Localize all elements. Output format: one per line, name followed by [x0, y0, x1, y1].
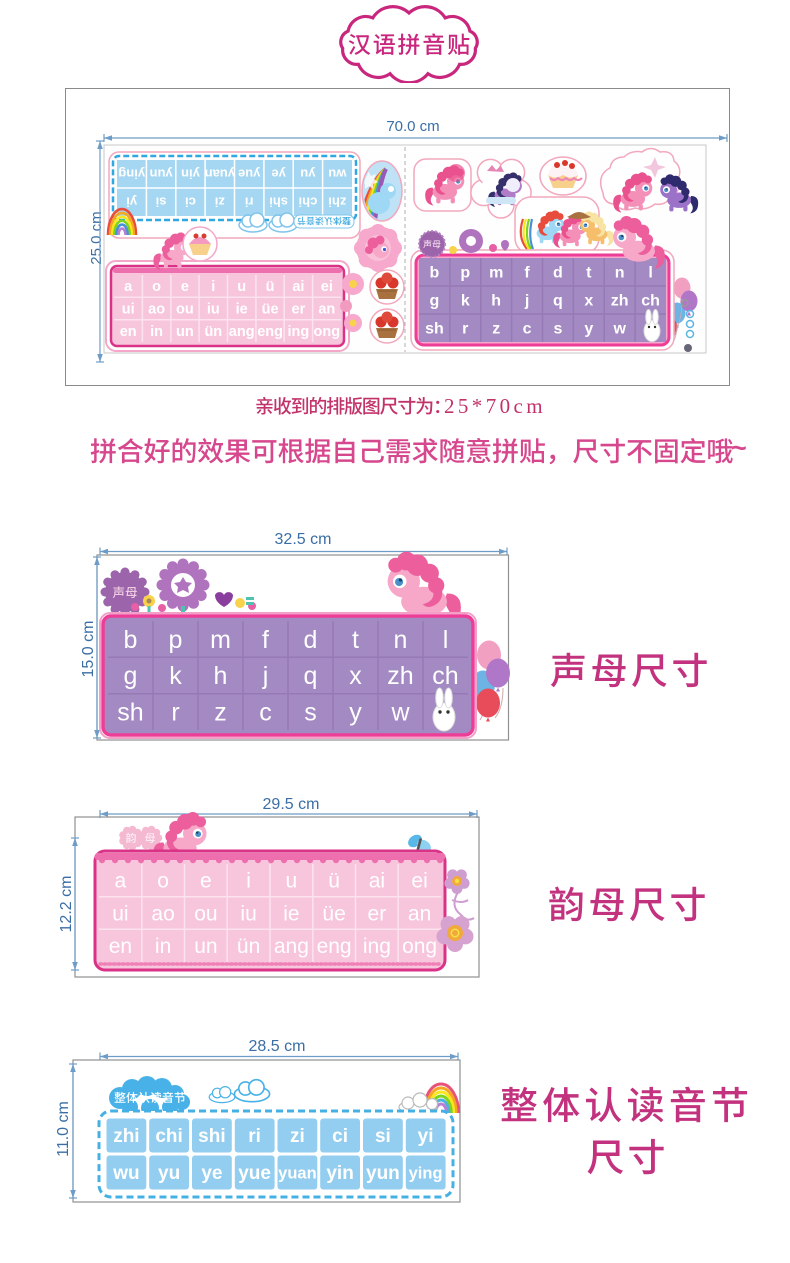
svg-text:h: h: [491, 293, 501, 310]
svg-text:25*70cm: 25*70cm: [444, 394, 546, 418]
svg-text:c: c: [259, 699, 272, 727]
svg-text:ong: ong: [402, 935, 437, 958]
svg-text:ye: ye: [201, 1163, 222, 1184]
svg-text:d: d: [553, 265, 563, 282]
svg-text:shi: shi: [269, 195, 288, 210]
svg-text:chi: chi: [155, 1126, 182, 1147]
svg-text:t: t: [352, 626, 359, 654]
svg-text:ün: ün: [237, 935, 260, 958]
svg-text:a: a: [124, 279, 133, 295]
svg-text:ü: ü: [266, 279, 275, 295]
svg-text:15.0 cm: 15.0 cm: [80, 621, 97, 678]
svg-text:ying: ying: [118, 167, 145, 182]
svg-text:b: b: [124, 626, 138, 654]
svg-text:shi: shi: [198, 1126, 225, 1147]
svg-text:g: g: [430, 293, 440, 310]
svg-text:eng: eng: [257, 324, 283, 340]
svg-text:yun: yun: [366, 1163, 400, 1184]
svg-text:r: r: [462, 321, 468, 338]
svg-text:ong: ong: [314, 324, 341, 340]
svg-text:25.0 cm: 25.0 cm: [88, 211, 105, 264]
svg-text:28.5 cm: 28.5 cm: [249, 1038, 306, 1055]
svg-text:in: in: [155, 935, 171, 958]
svg-text:un: un: [194, 935, 217, 958]
svg-text:q: q: [304, 662, 318, 690]
svg-text:zi: zi: [215, 195, 225, 210]
svg-text:zh: zh: [387, 662, 413, 690]
svg-text:ye: ye: [271, 167, 285, 182]
svg-text:ü: ü: [328, 870, 340, 893]
svg-text:ang: ang: [274, 935, 309, 958]
svg-text:sh: sh: [425, 321, 444, 338]
svg-text:ci: ci: [332, 1126, 348, 1147]
svg-text:yue: yue: [238, 167, 260, 182]
svg-text:ing: ing: [288, 324, 310, 340]
svg-text:x: x: [349, 662, 362, 690]
svg-text:m: m: [210, 626, 231, 654]
svg-text:y: y: [584, 321, 593, 338]
svg-text:z: z: [492, 321, 500, 338]
svg-text:f: f: [262, 626, 269, 654]
svg-text:29.5 cm: 29.5 cm: [263, 796, 320, 813]
svg-text:en: en: [109, 935, 132, 958]
svg-text:wu: wu: [328, 167, 347, 182]
svg-text:üe: üe: [262, 302, 279, 318]
svg-text:zh: zh: [611, 293, 629, 310]
svg-text:ui: ui: [112, 902, 128, 925]
svg-text:er: er: [292, 302, 306, 318]
svg-text:l: l: [443, 626, 449, 654]
svg-text:n: n: [394, 626, 408, 654]
svg-text:z: z: [214, 699, 227, 727]
svg-text:ie: ie: [283, 902, 299, 925]
svg-text:w: w: [612, 321, 626, 338]
svg-text:er: er: [368, 902, 387, 925]
svg-text:an: an: [408, 902, 431, 925]
svg-text:ying: ying: [409, 1164, 443, 1182]
svg-text:yi: yi: [418, 1126, 434, 1147]
svg-text:ei: ei: [321, 279, 333, 295]
svg-text:wu: wu: [112, 1163, 139, 1184]
svg-text:s: s: [304, 699, 317, 727]
svg-text:yi: yi: [126, 195, 137, 210]
svg-text:i: i: [211, 279, 215, 295]
svg-text:u: u: [237, 279, 246, 295]
svg-text:t: t: [586, 265, 592, 282]
svg-text:ch: ch: [641, 293, 660, 310]
svg-text:ri: ri: [245, 195, 254, 210]
svg-text:u: u: [286, 870, 298, 893]
svg-text:~: ~: [731, 433, 747, 463]
svg-text:f: f: [524, 265, 530, 282]
svg-text:o: o: [157, 870, 169, 893]
svg-text:ei: ei: [411, 870, 427, 893]
svg-text:p: p: [169, 626, 183, 654]
svg-text:iu: iu: [207, 302, 220, 318]
svg-text:x: x: [584, 293, 593, 310]
svg-text:ui: ui: [122, 302, 135, 318]
svg-text:e: e: [200, 870, 212, 893]
svg-text:si: si: [156, 195, 167, 210]
svg-text:j: j: [524, 293, 529, 310]
svg-text:sh: sh: [117, 699, 143, 727]
svg-text:ci: ci: [185, 195, 196, 210]
svg-text:d: d: [304, 626, 318, 654]
svg-text:yue: yue: [238, 1163, 271, 1184]
svg-text:o: o: [152, 279, 161, 295]
svg-text:ai: ai: [369, 870, 385, 893]
svg-text:g: g: [124, 662, 138, 690]
svg-text:si: si: [375, 1126, 391, 1147]
svg-text:ou: ou: [176, 302, 194, 318]
svg-text:yuan: yuan: [278, 1164, 317, 1182]
svg-text:yin: yin: [326, 1163, 353, 1184]
svg-text:ao: ao: [151, 902, 174, 925]
svg-text:ri: ri: [248, 1126, 261, 1147]
svg-text:ie: ie: [236, 302, 248, 318]
svg-text:a: a: [115, 870, 127, 893]
svg-text:yu: yu: [300, 167, 315, 182]
svg-text:üe: üe: [322, 902, 345, 925]
svg-text:m: m: [489, 265, 503, 282]
svg-text:yu: yu: [158, 1163, 180, 1184]
svg-text:zhi: zhi: [113, 1126, 139, 1147]
svg-text:an: an: [318, 302, 335, 318]
svg-text:eng: eng: [317, 935, 352, 958]
svg-text:c: c: [523, 321, 532, 338]
svg-text:zhi: zhi: [328, 195, 346, 210]
svg-text:ch: ch: [432, 662, 458, 690]
svg-text:e: e: [181, 279, 189, 295]
svg-text:b: b: [430, 265, 440, 282]
svg-text:yun: yun: [149, 167, 172, 182]
svg-text:h: h: [214, 662, 228, 690]
svg-text:en: en: [120, 324, 137, 340]
svg-text:ün: ün: [204, 324, 222, 340]
svg-text:ao: ao: [148, 302, 165, 318]
svg-text:ang: ang: [229, 324, 255, 340]
svg-text:i: i: [246, 870, 251, 893]
svg-text:yin: yin: [181, 167, 200, 182]
svg-text:l: l: [648, 265, 652, 282]
svg-text:k: k: [461, 293, 470, 310]
svg-text:12.2 cm: 12.2 cm: [58, 876, 75, 933]
svg-text:p: p: [460, 265, 470, 282]
svg-text:yuan: yuan: [205, 167, 235, 182]
svg-text:iu: iu: [240, 902, 256, 925]
svg-text:chi: chi: [299, 195, 318, 210]
svg-text:un: un: [176, 324, 194, 340]
svg-text:ou: ou: [194, 902, 217, 925]
svg-text:q: q: [553, 293, 563, 310]
svg-text:zi: zi: [290, 1126, 305, 1147]
svg-text:ing: ing: [363, 935, 391, 958]
svg-text:n: n: [615, 265, 625, 282]
svg-text:in: in: [150, 324, 163, 340]
svg-text:s: s: [553, 321, 562, 338]
svg-text:11.0 cm: 11.0 cm: [55, 1101, 72, 1157]
svg-text:y: y: [349, 699, 362, 727]
svg-text:w: w: [390, 699, 410, 727]
svg-text:k: k: [169, 662, 182, 690]
svg-text:j: j: [262, 662, 269, 690]
svg-text:32.5 cm: 32.5 cm: [275, 531, 332, 548]
svg-text:r: r: [171, 699, 179, 727]
svg-text:ai: ai: [292, 279, 304, 295]
svg-text:70.0 cm: 70.0 cm: [386, 118, 439, 135]
